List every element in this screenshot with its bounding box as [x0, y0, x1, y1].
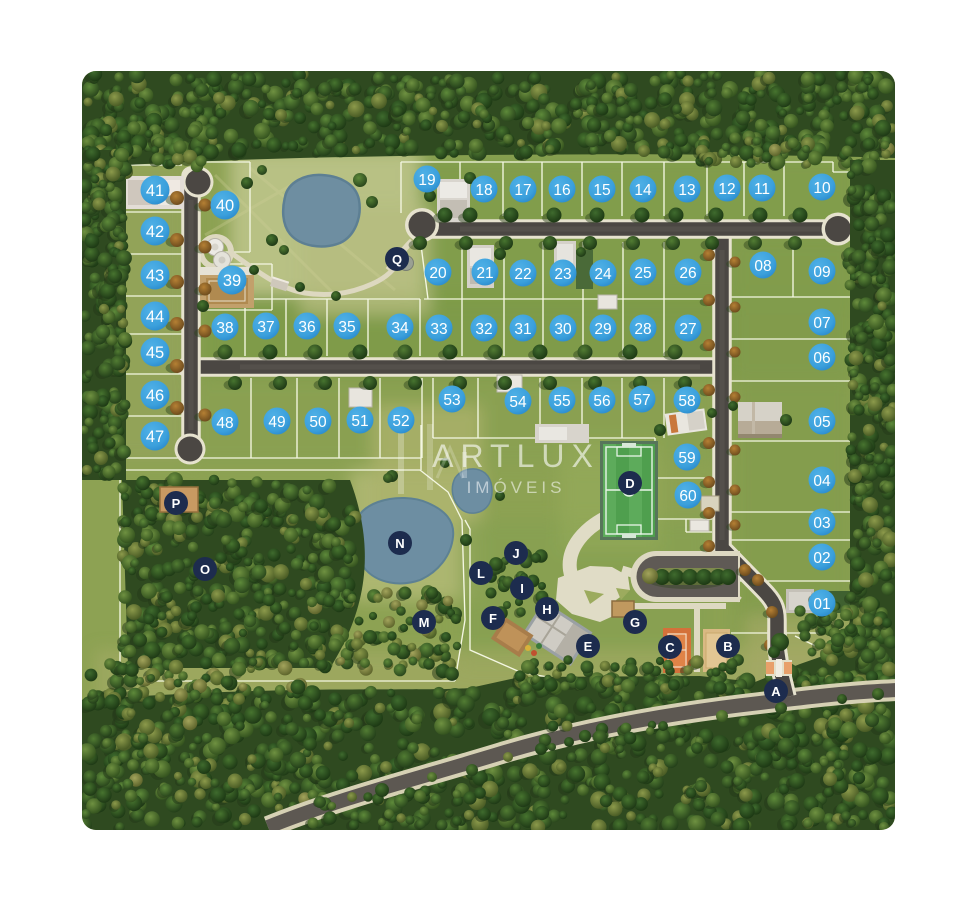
svg-text:02: 02 — [813, 550, 830, 567]
svg-text:Q: Q — [392, 252, 402, 267]
svg-text:P: P — [172, 496, 181, 511]
svg-text:B: B — [723, 639, 732, 654]
svg-text:39: 39 — [223, 272, 241, 290]
svg-text:27: 27 — [679, 321, 696, 338]
svg-text:59: 59 — [678, 450, 695, 467]
svg-text:24: 24 — [594, 266, 612, 283]
svg-text:42: 42 — [146, 223, 164, 241]
svg-text:11: 11 — [754, 181, 770, 198]
svg-text:41: 41 — [146, 182, 164, 200]
svg-text:L: L — [477, 566, 485, 581]
svg-text:29: 29 — [594, 321, 611, 338]
svg-text:08: 08 — [754, 258, 771, 275]
svg-text:12: 12 — [718, 181, 735, 198]
svg-text:54: 54 — [509, 394, 527, 411]
svg-text:ARTLUX: ARTLUX — [432, 438, 600, 474]
svg-text:33: 33 — [430, 321, 447, 338]
svg-text:G: G — [630, 615, 640, 630]
svg-text:56: 56 — [593, 393, 610, 410]
svg-text:25: 25 — [634, 265, 651, 282]
svg-text:N: N — [395, 536, 404, 551]
svg-text:13: 13 — [678, 182, 695, 199]
svg-text:37: 37 — [257, 319, 274, 336]
svg-text:C: C — [665, 640, 675, 655]
svg-text:32: 32 — [475, 321, 492, 338]
svg-text:40: 40 — [216, 197, 234, 215]
svg-text:05: 05 — [813, 414, 830, 431]
svg-text:44: 44 — [146, 308, 164, 326]
svg-text:I: I — [520, 581, 524, 596]
svg-text:49: 49 — [268, 414, 285, 431]
svg-text:57: 57 — [633, 392, 650, 409]
svg-text:H: H — [542, 602, 551, 617]
svg-text:46: 46 — [146, 387, 164, 405]
svg-text:30: 30 — [554, 321, 572, 338]
svg-text:O: O — [200, 562, 210, 577]
svg-text:03: 03 — [813, 515, 830, 532]
svg-text:E: E — [584, 639, 593, 654]
svg-text:A: A — [771, 684, 781, 699]
svg-text:50: 50 — [309, 414, 327, 431]
svg-text:17: 17 — [514, 182, 531, 199]
svg-text:06: 06 — [813, 350, 830, 367]
svg-text:21: 21 — [476, 265, 493, 282]
svg-text:38: 38 — [216, 320, 233, 337]
svg-text:28: 28 — [634, 321, 651, 338]
svg-text:14: 14 — [634, 182, 652, 199]
svg-text:16: 16 — [553, 182, 570, 199]
svg-text:48: 48 — [216, 415, 233, 432]
svg-text:M: M — [419, 615, 430, 630]
svg-text:04: 04 — [813, 473, 831, 490]
svg-text:19: 19 — [418, 172, 435, 189]
svg-text:F: F — [489, 611, 497, 626]
svg-text:18: 18 — [475, 182, 492, 199]
svg-text:20: 20 — [429, 265, 447, 282]
svg-text:55: 55 — [553, 393, 570, 410]
svg-text:35: 35 — [338, 319, 355, 336]
svg-text:01: 01 — [813, 596, 830, 613]
svg-text:10: 10 — [813, 180, 831, 197]
svg-text:IMÓVEIS: IMÓVEIS — [467, 478, 566, 497]
svg-text:23: 23 — [554, 266, 571, 283]
svg-text:52: 52 — [392, 413, 409, 430]
svg-text:22: 22 — [514, 266, 531, 283]
svg-text:D: D — [625, 476, 634, 491]
svg-text:36: 36 — [298, 319, 315, 336]
svg-text:51: 51 — [351, 413, 368, 430]
svg-text:26: 26 — [679, 265, 696, 282]
svg-text:53: 53 — [443, 392, 460, 409]
svg-text:43: 43 — [146, 267, 164, 285]
svg-text:15: 15 — [593, 182, 610, 199]
svg-text:J: J — [512, 546, 519, 561]
svg-text:09: 09 — [813, 264, 830, 281]
svg-text:45: 45 — [146, 344, 164, 362]
svg-text:34: 34 — [391, 320, 409, 337]
svg-text:58: 58 — [678, 393, 695, 410]
svg-text:47: 47 — [146, 428, 164, 446]
svg-text:60: 60 — [679, 488, 697, 505]
svg-text:31: 31 — [514, 321, 531, 338]
svg-text:07: 07 — [813, 315, 830, 332]
